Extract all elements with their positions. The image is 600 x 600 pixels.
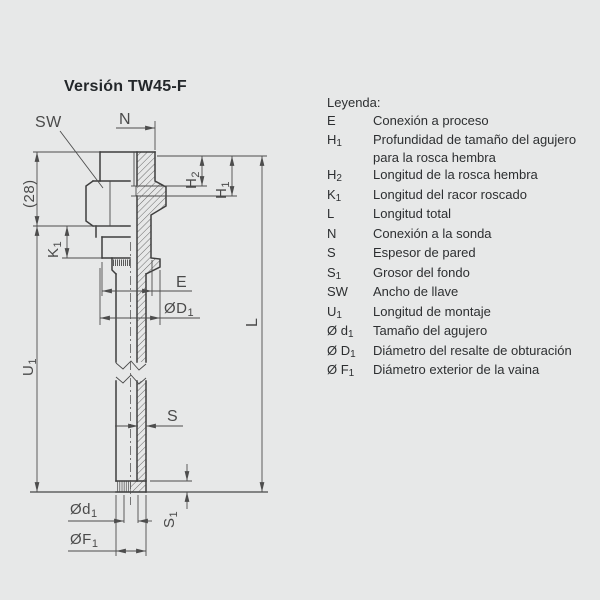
- dim-label-u1: U1: [20, 358, 39, 376]
- legend-term: H2: [327, 166, 373, 186]
- legend-desc: Ancho de llave: [373, 283, 579, 303]
- dim-label-k1: K1: [45, 241, 64, 258]
- dim-label-d1: Ød1: [70, 501, 98, 520]
- legend-row: N Conexión a la sonda: [327, 225, 579, 245]
- dim-label-s: S: [167, 408, 178, 425]
- legend-term: L: [327, 205, 373, 225]
- legend-term: Ø F1: [327, 361, 373, 381]
- legend-term: SW: [327, 283, 373, 303]
- legend-desc: Profundidad de tamaño del agujero para l…: [373, 131, 579, 166]
- dim-label-e: E: [176, 274, 187, 291]
- legend-row: L Longitud total: [327, 205, 579, 225]
- legend-row: H2 Longitud de la rosca hembra: [327, 166, 579, 186]
- dim-label-l: L: [244, 318, 261, 327]
- legend-term: K1: [327, 186, 373, 206]
- legend-term: E: [327, 112, 373, 132]
- dim-label-h2: H2: [183, 171, 202, 189]
- legend: Leyenda: E Conexión a proceso H1 Profund…: [327, 94, 579, 381]
- legend-heading: Leyenda:: [327, 94, 579, 112]
- legend-term: S1: [327, 264, 373, 284]
- legend-desc: Espesor de pared: [373, 244, 579, 264]
- dim-label-28: (28): [21, 179, 38, 208]
- dim-label-D1: ØD1: [164, 300, 194, 319]
- legend-desc: Longitud de montaje: [373, 303, 579, 323]
- legend-term: H1: [327, 131, 373, 166]
- legend-desc: Longitud total: [373, 205, 579, 225]
- legend-desc: Grosor del fondo: [373, 264, 579, 284]
- legend-desc: Diámetro exterior de la vaina: [373, 361, 579, 381]
- legend-row: SW Ancho de llave: [327, 283, 579, 303]
- legend-row: U1 Longitud de montaje: [327, 303, 579, 323]
- legend-term: S: [327, 244, 373, 264]
- legend-term: Ø D1: [327, 342, 373, 362]
- dim-label-f1: ØF1: [70, 531, 98, 550]
- legend-row: Ø D1 Diámetro del resalte de obturación: [327, 342, 579, 362]
- dimension-lines: [30, 121, 268, 556]
- legend-row: Ø F1 Diámetro exterior de la vaina: [327, 361, 579, 381]
- break-symbol: [116, 361, 146, 384]
- legend-desc: Conexión a proceso: [373, 112, 579, 132]
- legend-term: U1: [327, 303, 373, 323]
- legend-row: S Espesor de pared: [327, 244, 579, 264]
- legend-desc: Diámetro del resalte de obturación: [373, 342, 579, 362]
- page: Versión TW45-F: [0, 0, 600, 600]
- dim-label-n: N: [119, 111, 131, 128]
- legend-row: H1 Profundidad de tamaño del agujero par…: [327, 131, 579, 166]
- legend-row: Ø d1 Tamaño del agujero: [327, 322, 579, 342]
- legend-row: E Conexión a proceso: [327, 112, 579, 132]
- legend-row: K1 Longitud del racor roscado: [327, 186, 579, 206]
- legend-term: N: [327, 225, 373, 245]
- legend-desc: Longitud de la rosca hembra: [373, 166, 579, 186]
- dim-label-h1: H1: [213, 181, 232, 199]
- thread-relief-ticks: [114, 260, 130, 267]
- legend-row: S1 Grosor del fondo: [327, 264, 579, 284]
- dim-label-sw: SW: [35, 114, 62, 131]
- section-hatch: [116, 152, 166, 492]
- legend-term: Ø d1: [327, 322, 373, 342]
- legend-desc: Longitud del racor roscado: [373, 186, 579, 206]
- legend-desc: Tamaño del agujero: [373, 322, 579, 342]
- legend-desc: Conexión a la sonda: [373, 225, 579, 245]
- technical-drawing: SW N (28) K1 U1 H2 H1 L E ØD1 S S1 Ød1 Ø…: [0, 0, 320, 600]
- dim-label-s1: S1: [161, 511, 180, 528]
